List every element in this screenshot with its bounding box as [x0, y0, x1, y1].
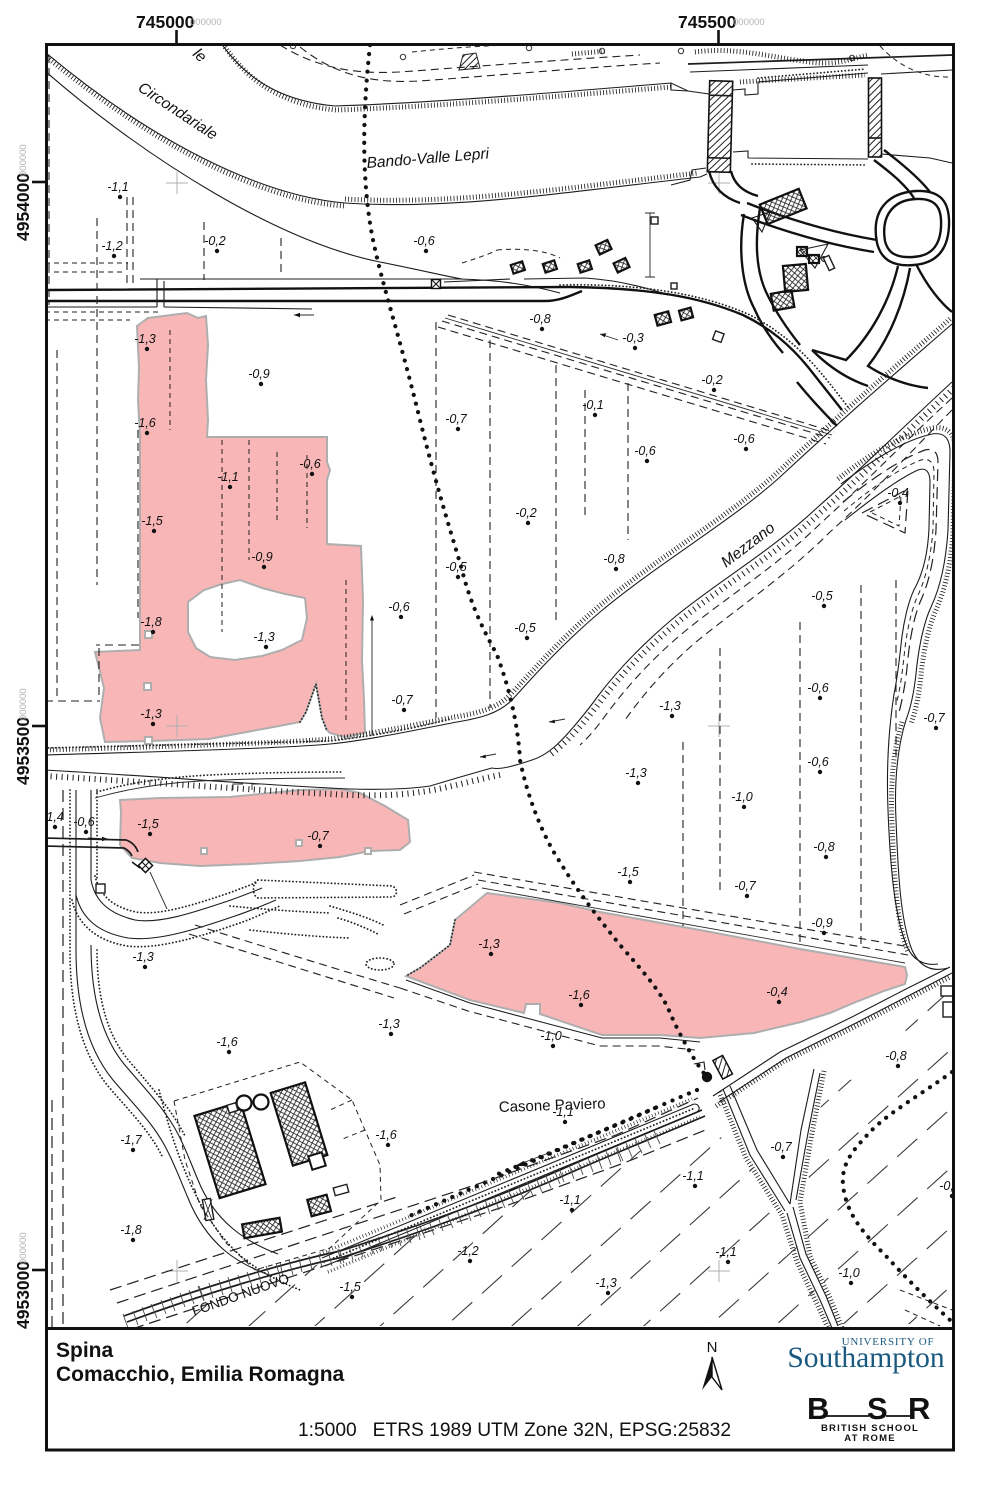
svg-text:Casone Paviero: Casone Paviero — [499, 1095, 606, 1116]
svg-text:-0,7: -0,7 — [307, 829, 330, 843]
svg-text:-1,5: -1,5 — [141, 514, 163, 528]
svg-text:-1,0: -1,0 — [731, 790, 753, 804]
svg-text:000000: 000000 — [733, 17, 765, 28]
svg-text:-0,6: -0,6 — [807, 681, 829, 695]
svg-text:-1,8: -1,8 — [140, 615, 162, 629]
svg-text:Circondariale: Circondariale — [135, 79, 221, 144]
svg-text:-0,9: -0,9 — [248, 367, 270, 381]
svg-text:-0,2: -0,2 — [701, 373, 723, 387]
svg-text:-1,1: -1,1 — [107, 180, 129, 194]
svg-text:R: R — [908, 1391, 930, 1426]
svg-text:-1,1: -1,1 — [559, 1193, 581, 1207]
svg-text:-0,5: -0,5 — [811, 589, 833, 603]
svg-text:-1,6: -1,6 — [216, 1035, 238, 1049]
svg-text:-1,0: -1,0 — [540, 1029, 562, 1043]
svg-text:-1,5: -1,5 — [137, 817, 159, 831]
svg-text:000000: 000000 — [18, 1232, 29, 1264]
svg-text:-1,5: -1,5 — [617, 865, 639, 879]
svg-text:-0,6: -0,6 — [634, 444, 656, 458]
svg-text:-1,3: -1,3 — [134, 332, 156, 346]
svg-text:000000: 000000 — [18, 688, 29, 720]
svg-text:-0,2: -0,2 — [204, 234, 226, 248]
svg-text:-0,5: -0,5 — [514, 621, 536, 635]
svg-text:-0,7: -0,7 — [391, 693, 414, 707]
svg-text:-0,1: -0,1 — [582, 398, 604, 412]
svg-text:le: le — [189, 45, 210, 66]
svg-text:-1,1: -1,1 — [217, 470, 239, 484]
svg-text:4953000: 4953000 — [13, 1261, 33, 1329]
svg-text:-0,8: -0,8 — [529, 312, 551, 326]
svg-text:-0,9: -0,9 — [811, 916, 833, 930]
svg-text:-1,6: -1,6 — [568, 988, 590, 1002]
svg-text:1:5000 ETRS 1989 UTM Zone 32: 1:5000 ETRS 1989 UTM Zone 32N, EPSG:2583… — [298, 1420, 731, 1441]
svg-text:-0,6: -0,6 — [733, 432, 755, 446]
svg-text:745500: 745500 — [678, 12, 737, 32]
svg-text:-0,8: -0,8 — [813, 840, 835, 854]
svg-text:-1,2: -1,2 — [457, 1244, 479, 1258]
svg-text:-1,2: -1,2 — [101, 239, 123, 253]
svg-text:-1,3: -1,3 — [478, 937, 500, 951]
svg-text:-0,6: -0,6 — [73, 815, 95, 829]
svg-text:-1,3: -1,3 — [132, 950, 154, 964]
svg-text:-0,9: -0,9 — [939, 1179, 961, 1193]
svg-text:-1,3: -1,3 — [659, 699, 681, 713]
svg-text:-1,3: -1,3 — [253, 630, 275, 644]
svg-text:745000: 745000 — [136, 12, 195, 32]
svg-text:-0,7: -0,7 — [923, 711, 946, 725]
svg-text:-1,6: -1,6 — [134, 416, 156, 430]
svg-text:-1,7: -1,7 — [120, 1133, 143, 1147]
svg-text:-1,3: -1,3 — [625, 766, 647, 780]
svg-text:-1,1: -1,1 — [715, 1245, 737, 1259]
svg-text:-0,4: -0,4 — [766, 985, 788, 999]
svg-text:N: N — [707, 1339, 718, 1356]
svg-text:-0,6: -0,6 — [413, 234, 435, 248]
svg-text:-1,1: -1,1 — [682, 1169, 704, 1183]
svg-text:-0,6: -0,6 — [299, 457, 321, 471]
svg-text:AT ROME: AT ROME — [844, 1433, 896, 1444]
svg-text:-1,3: -1,3 — [140, 707, 162, 721]
svg-text:000000: 000000 — [18, 144, 29, 176]
svg-text:-0,7: -0,7 — [734, 879, 757, 893]
svg-text:-0,8: -0,8 — [885, 1049, 907, 1063]
svg-text:-1,0: -1,0 — [838, 1266, 860, 1280]
svg-text:Bando-Valle Lepri: Bando-Valle Lepri — [366, 145, 490, 172]
svg-text:-1,5: -1,5 — [339, 1280, 361, 1294]
svg-text:-1,8: -1,8 — [120, 1223, 142, 1237]
svg-text:-1,6: -1,6 — [375, 1128, 397, 1142]
svg-text:-0,9: -0,9 — [251, 550, 273, 564]
svg-text:-0,6: -0,6 — [388, 600, 410, 614]
svg-text:-0,2: -0,2 — [515, 506, 537, 520]
svg-text:4953500: 4953500 — [13, 717, 33, 785]
svg-text:-1,3: -1,3 — [378, 1017, 400, 1031]
svg-text:Spina: Spina — [56, 1339, 113, 1362]
svg-text:-0,4: -0,4 — [887, 486, 909, 500]
svg-text:-0,3: -0,3 — [622, 331, 644, 345]
svg-text:S: S — [867, 1391, 888, 1426]
svg-text:-0,6: -0,6 — [807, 755, 829, 769]
svg-text:-1,3: -1,3 — [595, 1276, 617, 1290]
svg-text:B: B — [807, 1391, 829, 1426]
svg-text:Comacchio, Emilia Romagna: Comacchio, Emilia Romagna — [56, 1363, 345, 1386]
svg-text:-0,8: -0,8 — [603, 552, 625, 566]
svg-text:-0,7: -0,7 — [770, 1140, 793, 1154]
svg-text:4954000: 4954000 — [13, 173, 33, 241]
svg-text:-0,5: -0,5 — [445, 560, 467, 574]
svg-text:Southampton: Southampton — [787, 1342, 945, 1374]
svg-text:000000: 000000 — [190, 17, 222, 28]
svg-text:-0,7: -0,7 — [445, 412, 468, 426]
